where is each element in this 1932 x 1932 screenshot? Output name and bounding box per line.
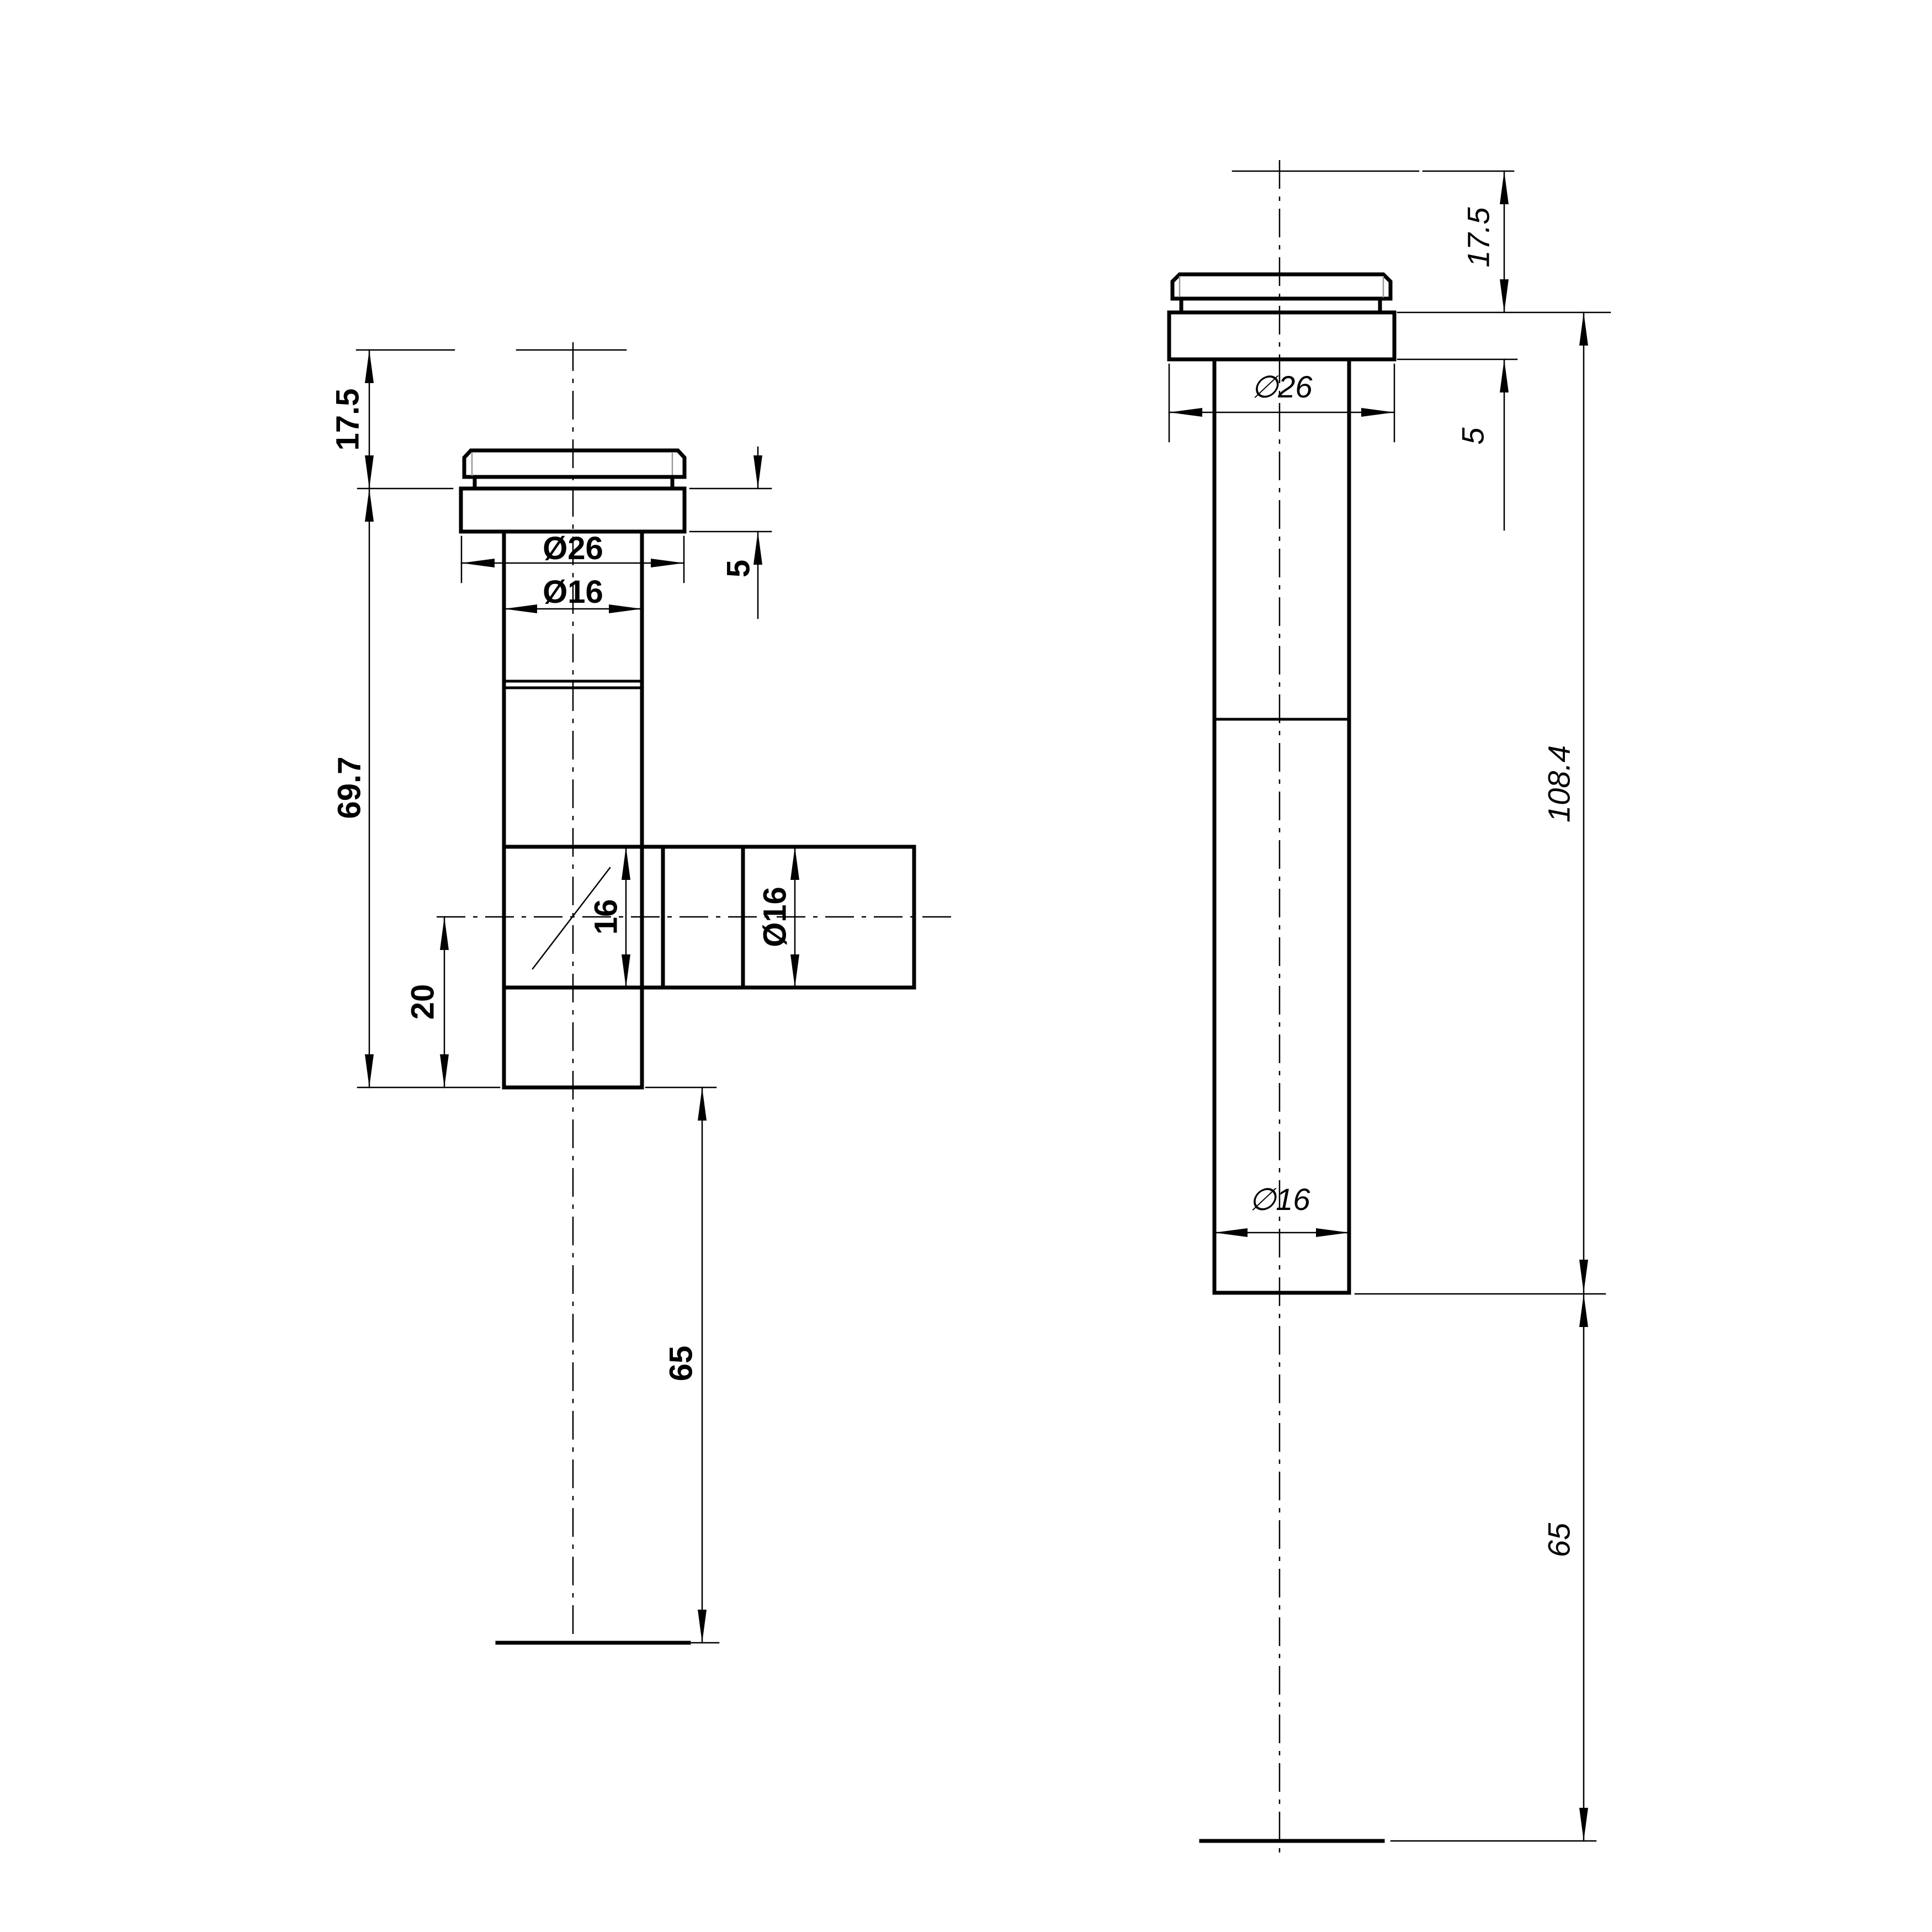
dim-label-body-length-right: 108.4 (1542, 745, 1577, 822)
cad-drawing-canvas: 17.5 69.7 Ø26 Ø16 5 16 Ø16 20 65 (0, 0, 1932, 1932)
dim-arrowhead (365, 455, 374, 489)
dim-arrowhead (1169, 408, 1202, 417)
right-flange-outline (1169, 312, 1394, 359)
left-cap-bevel-outline (464, 450, 684, 477)
dim-label-branch-bore: 16 (588, 899, 624, 935)
dim-arrowhead (365, 489, 374, 522)
dim-label-cap-height-right: 17.5 (1461, 207, 1496, 268)
dim-label-cap-height-left: 17.5 (330, 389, 366, 451)
dim-arrowhead (698, 1610, 707, 1643)
dim-arrowhead (698, 1087, 707, 1121)
dim-arrowhead (609, 604, 642, 613)
dim-arrowhead (790, 954, 799, 988)
dim-arrowhead (1214, 1228, 1248, 1237)
dim-arrowhead (1579, 1294, 1588, 1327)
dim-label-tail-length-right: 65 (1542, 1522, 1577, 1557)
left-view: 17.5 69.7 Ø26 Ø16 5 16 Ø16 20 65 (330, 342, 958, 1643)
dim-arrowhead (1500, 359, 1509, 392)
dim-arrowhead (622, 847, 630, 880)
dim-label-flange-diameter-left: Ø26 (543, 530, 603, 566)
dim-arrowhead (790, 847, 799, 880)
dim-arrowhead (440, 917, 449, 950)
dim-label-tube-diameter-left: Ø16 (543, 574, 603, 610)
dim-arrowhead (1579, 1808, 1588, 1841)
dim-label-tail-length-left: 65 (664, 1346, 699, 1382)
dim-arrowhead (365, 350, 374, 383)
dim-label-flange-diameter-right: ∅26 (1251, 369, 1313, 404)
drawing-sheet: 17.5 69.7 Ø26 Ø16 5 16 Ø16 20 65 (0, 0, 1932, 1932)
dim-arrowhead (1500, 171, 1509, 204)
dim-arrowhead (622, 954, 630, 988)
dim-arrowhead (1579, 1260, 1588, 1293)
dim-arrowhead (461, 559, 495, 567)
right-cap-bevel-outline (1172, 274, 1390, 299)
dim-arrowhead (440, 1054, 449, 1087)
dim-arrowhead (504, 604, 537, 613)
dim-arrowhead (1316, 1228, 1349, 1237)
dim-arrowhead (365, 1054, 374, 1087)
dim-label-tube-diameter-right: ∅16 (1249, 1182, 1310, 1217)
dim-arrowhead (651, 559, 684, 567)
dim-label-body-height-left: 69.7 (332, 757, 368, 819)
dim-arrowhead (1579, 312, 1588, 346)
dim-label-flange-thickness-right: 5 (1456, 427, 1490, 445)
dim-label-branch-diameter: Ø16 (757, 887, 793, 947)
dim-label-flange-thickness-left: 5 (721, 560, 757, 577)
dim-arrowhead (1500, 279, 1509, 312)
dim-arrowhead (753, 455, 762, 489)
dim-label-branch-offset: 20 (405, 984, 441, 1020)
dim-arrowhead (1361, 408, 1394, 417)
right-view: 17.5 ∅26 5 108.4 ∅16 65 (1169, 160, 1610, 1855)
